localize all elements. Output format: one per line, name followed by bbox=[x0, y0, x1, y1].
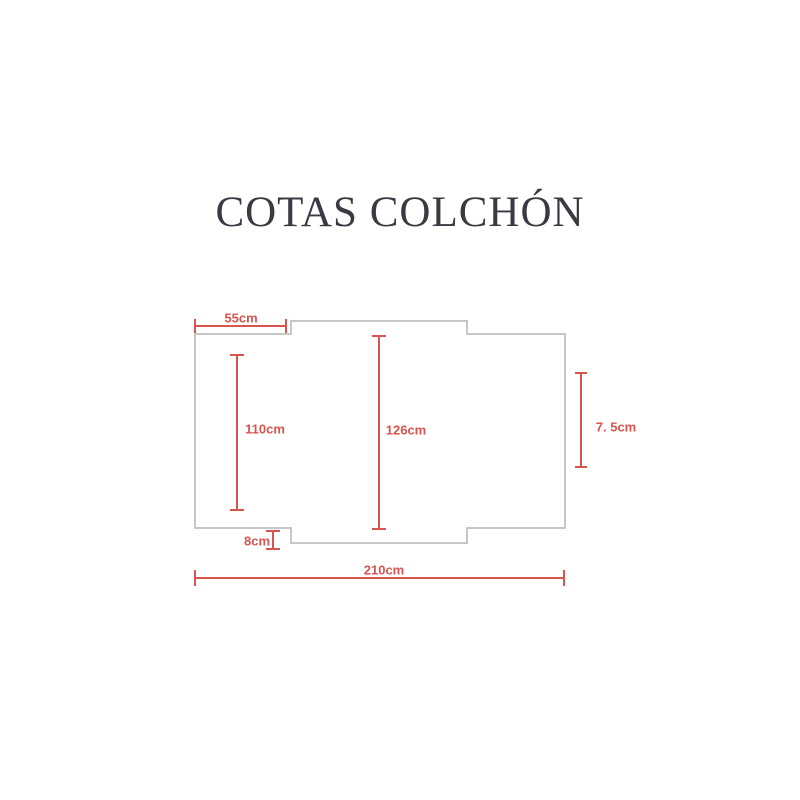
dimension-label-left-flap-width: 55cm bbox=[224, 312, 257, 325]
dimension-line-left-section-height bbox=[230, 355, 244, 510]
dimension-line-right-side-depth bbox=[575, 373, 587, 467]
dimension-label-right-side-depth: 7. 5cm bbox=[596, 421, 636, 434]
mattress-dimensions-page: COTAS COLCHÓN bbox=[0, 0, 800, 800]
dimension-label-total-width: 210cm bbox=[364, 564, 404, 577]
dimension-label-left-section-height: 110cm bbox=[245, 423, 285, 436]
dimension-line-center-section-height bbox=[372, 336, 386, 529]
mattress-outline-diagram bbox=[0, 0, 800, 800]
dimension-label-bottom-step-height: 8cm bbox=[244, 535, 270, 548]
dimension-label-center-section-height: 126cm bbox=[386, 424, 426, 437]
